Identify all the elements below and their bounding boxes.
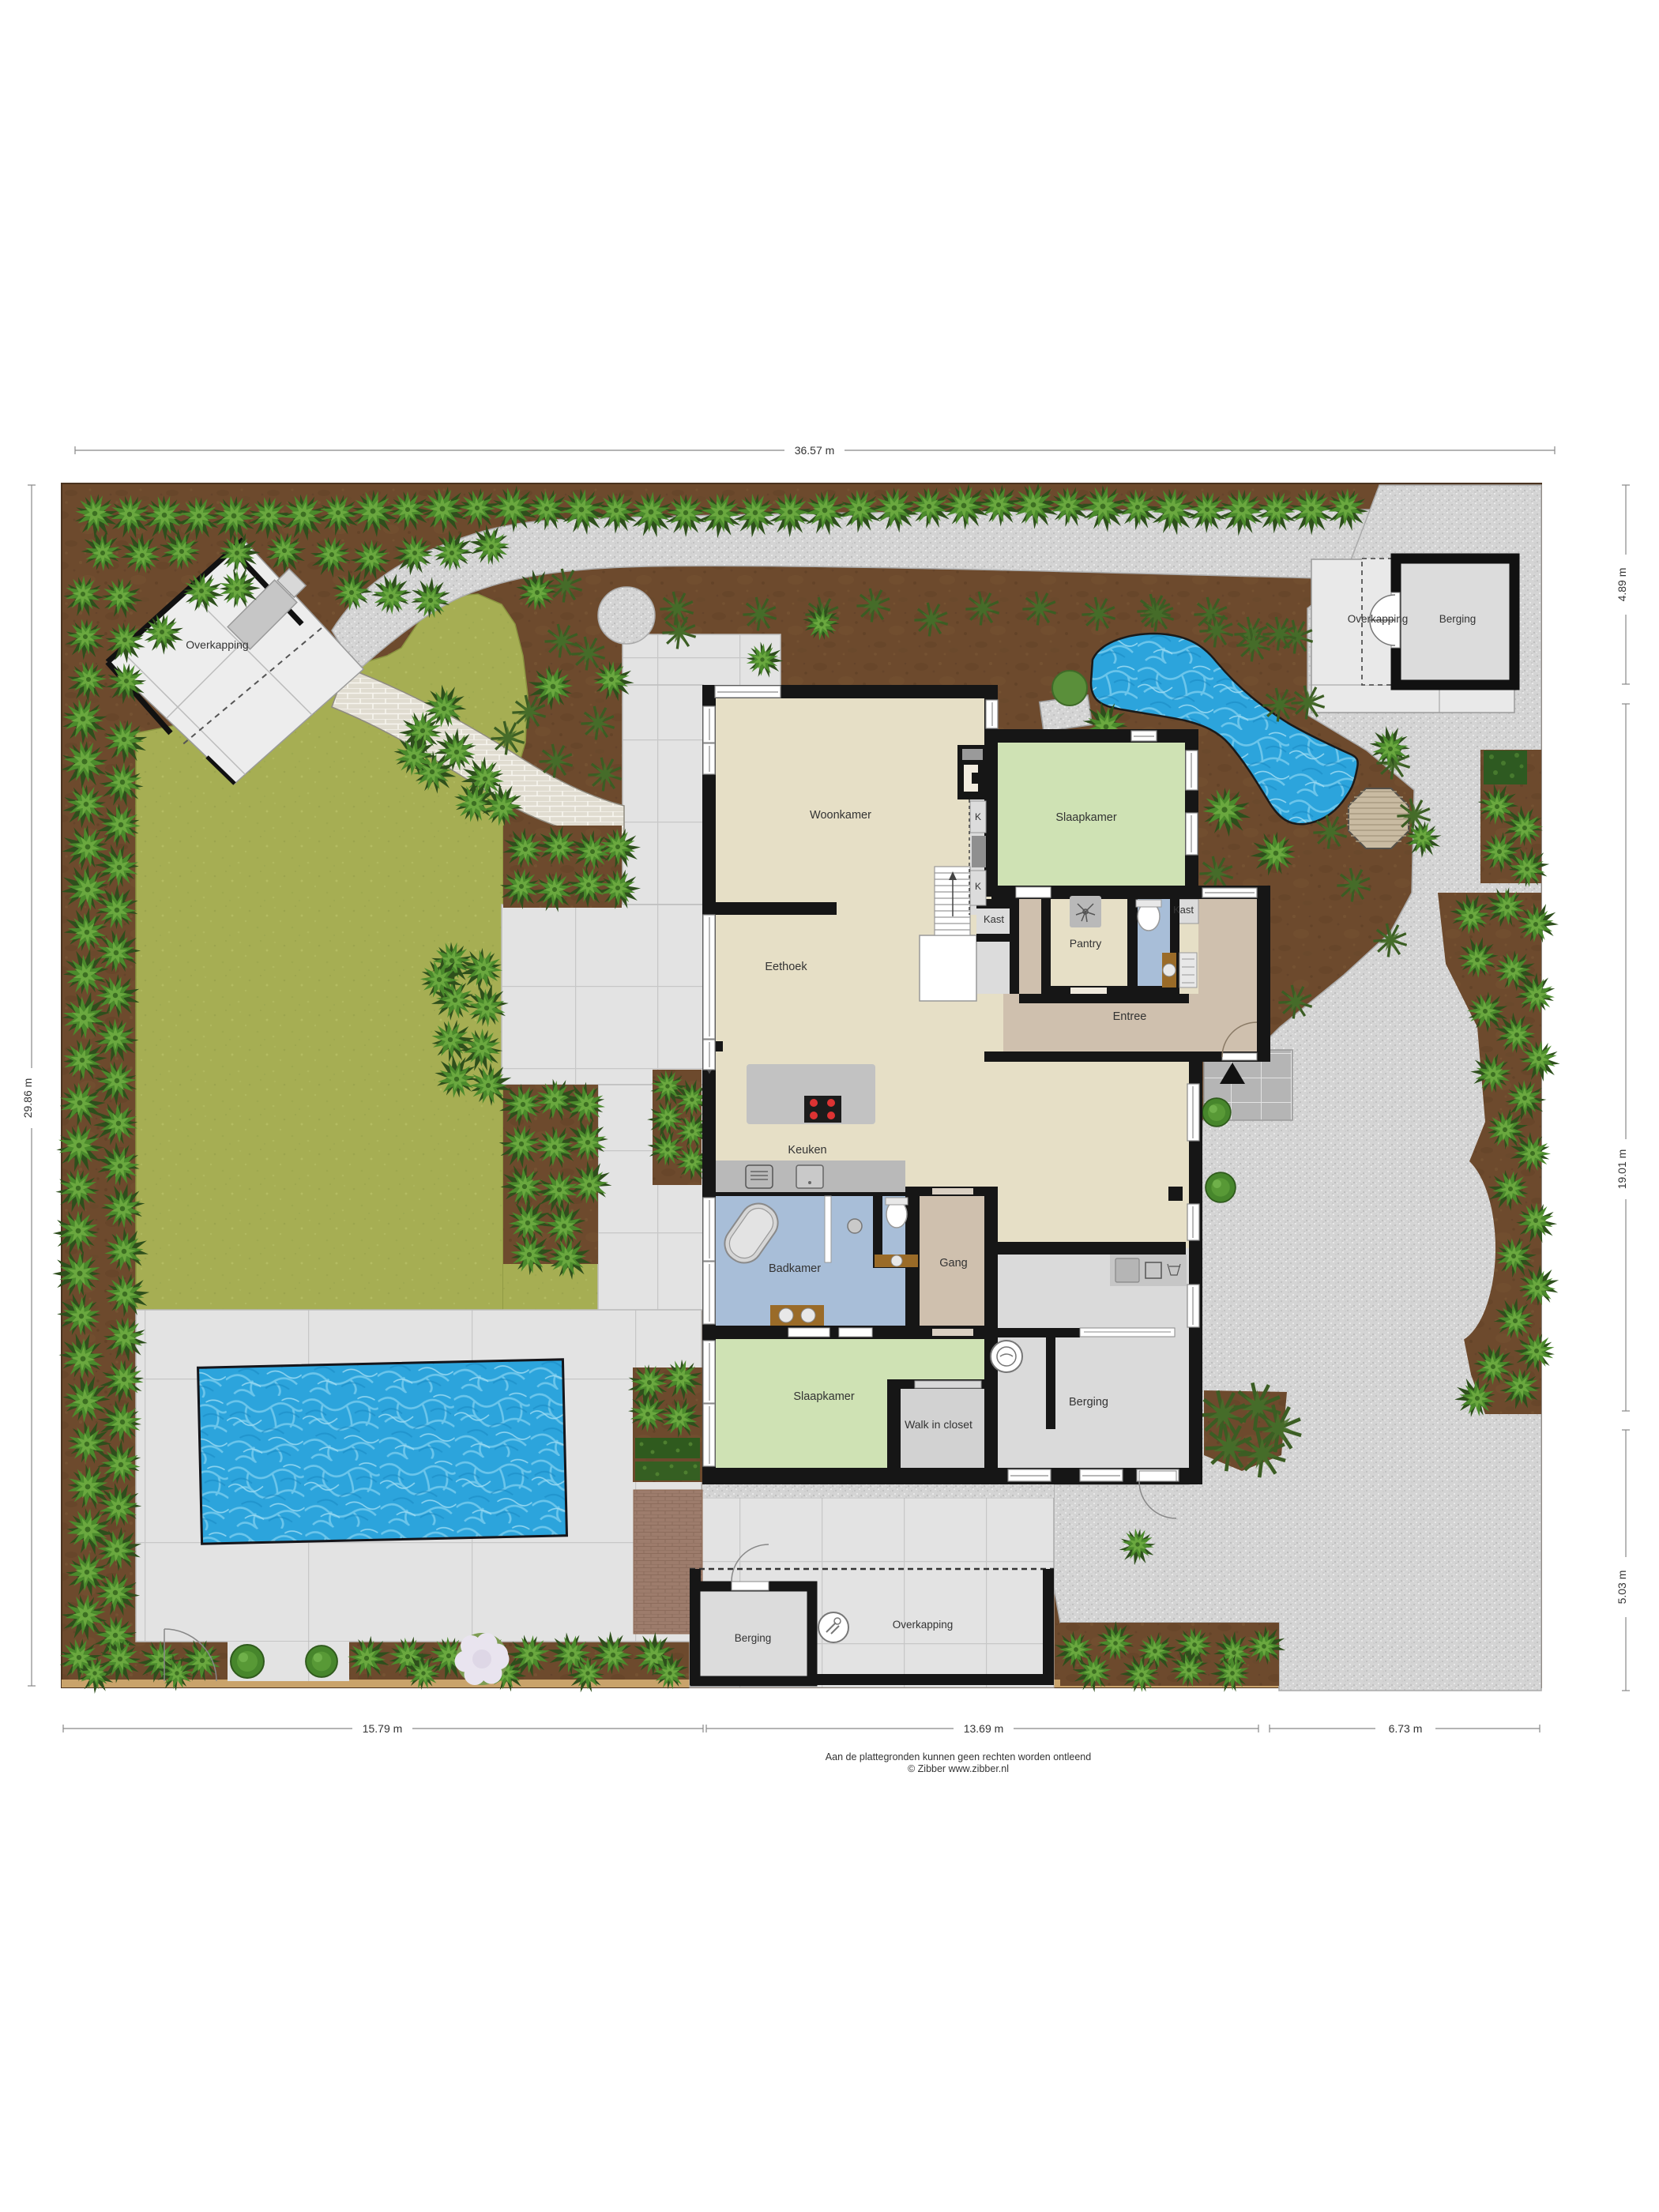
svg-text:6.73 m: 6.73 m [1389, 1722, 1423, 1735]
svg-text:Aan de plattegronden kunnen ge: Aan de plattegronden kunnen geen rechten… [826, 1751, 1091, 1762]
svg-text:Overkapping: Overkapping [186, 638, 248, 651]
svg-text:Badkamer: Badkamer [769, 1262, 821, 1275]
svg-text:19.01 m: 19.01 m [1616, 1149, 1628, 1190]
svg-text:15.79 m: 15.79 m [363, 1722, 403, 1735]
svg-text:K: K [975, 881, 981, 892]
svg-text:Walk in closet: Walk in closet [905, 1418, 972, 1431]
svg-text:36.57 m: 36.57 m [795, 444, 835, 457]
svg-text:K: K [975, 811, 981, 822]
svg-text:Keuken: Keuken [788, 1144, 826, 1157]
svg-text:4.89 m: 4.89 m [1616, 568, 1628, 602]
svg-text:Berging: Berging [1439, 613, 1477, 625]
svg-text:5.03 m: 5.03 m [1616, 1571, 1628, 1604]
svg-text:Entree: Entree [1113, 1010, 1147, 1023]
svg-text:29.86 m: 29.86 m [21, 1078, 34, 1119]
svg-text:Slaapkamer: Slaapkamer [1055, 811, 1117, 824]
svg-text:Kast: Kast [1173, 904, 1194, 916]
svg-text:Gang: Gang [939, 1257, 967, 1270]
svg-text:Woonkamer: Woonkamer [810, 809, 871, 822]
svg-text:Berging: Berging [735, 1632, 772, 1644]
svg-text:© Zibber www.zibber.nl: © Zibber www.zibber.nl [908, 1763, 1009, 1774]
svg-text:Eethoek: Eethoek [765, 961, 807, 973]
svg-text:13.69 m: 13.69 m [964, 1722, 1004, 1735]
svg-text:Kast: Kast [984, 913, 1004, 925]
svg-text:Pantry: Pantry [1070, 937, 1101, 950]
svg-text:Overkapping: Overkapping [1348, 613, 1409, 625]
svg-text:Berging: Berging [1069, 1396, 1108, 1409]
svg-text:Overkapping: Overkapping [893, 1619, 954, 1631]
svg-text:Slaapkamer: Slaapkamer [793, 1390, 855, 1403]
